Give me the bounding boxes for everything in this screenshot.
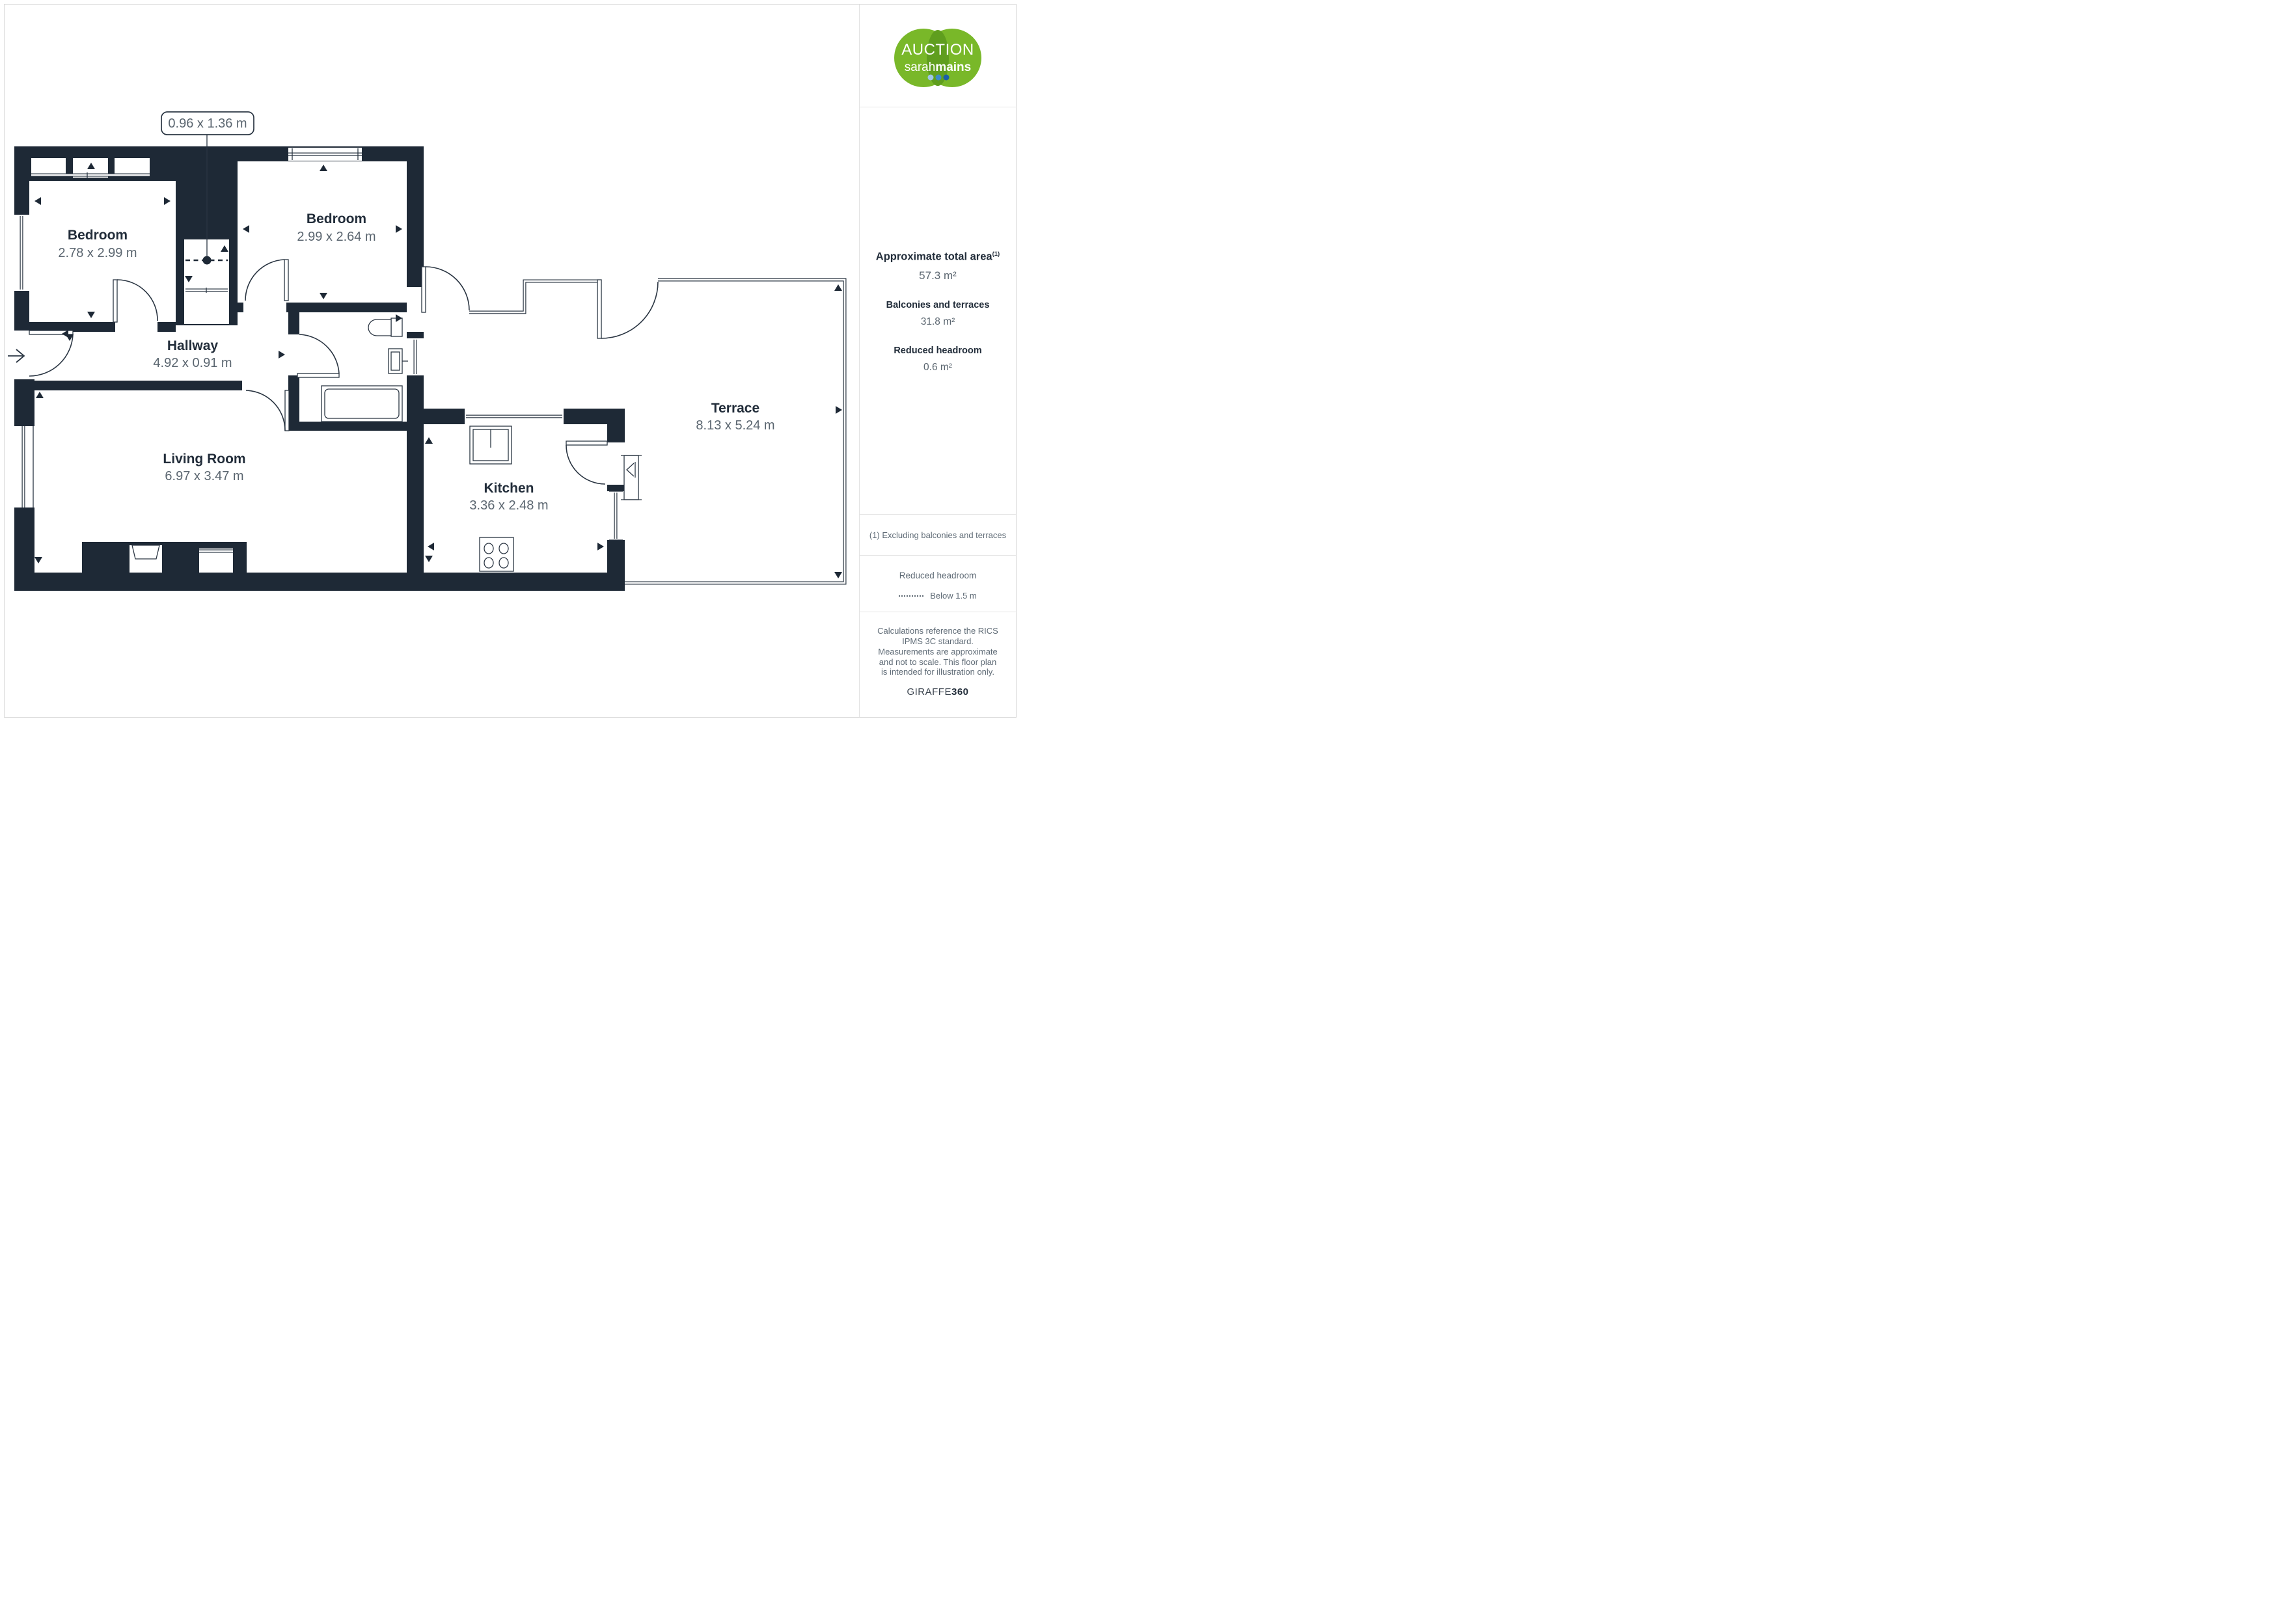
headroom-legend: Reduced headroom Below 1.5 m <box>860 571 1016 601</box>
bathtub-icon <box>321 386 402 422</box>
sidebar-divider-3 <box>860 555 1016 556</box>
sliding-door-terrace <box>621 455 642 500</box>
legend-title: Reduced headroom <box>860 571 1016 580</box>
terrace-railing <box>469 280 845 583</box>
floorplan-page: 0.96 x 1.36 m Bedroom 2.78 x 2.99 m Bedr… <box>0 0 1020 722</box>
fireplace-icon <box>132 545 159 559</box>
svg-text:Terrace: Terrace <box>711 401 759 416</box>
logo-word-mains: mains <box>935 61 971 74</box>
bedroom2-door <box>245 260 288 301</box>
info-sidebar: AUCTION sarahmains Approximate total are… <box>859 5 1016 717</box>
dimension-arrows <box>34 163 842 578</box>
svg-text:2.78 x 2.99 m: 2.78 x 2.99 m <box>58 246 137 260</box>
legend-value: Below 1.5 m <box>930 591 977 601</box>
brand-360: 360 <box>951 686 969 697</box>
balconies-value: 31.8 m² <box>860 316 1016 328</box>
dimension-callout: 0.96 x 1.36 m <box>161 112 254 135</box>
room-label-hallway: Hallway 4.92 x 0.91 m <box>153 338 232 370</box>
total-area-footnote-ref: (1) <box>992 250 1000 258</box>
kitchen-counter-icon <box>470 426 512 464</box>
doors <box>29 260 658 500</box>
svg-text:Living Room: Living Room <box>163 452 245 467</box>
logo-dot-dark <box>944 75 950 81</box>
headroom-value: 0.6 m² <box>860 362 1016 373</box>
logo-word-auction: AUCTION <box>901 41 974 59</box>
svg-text:2.99 x 2.64 m: 2.99 x 2.64 m <box>297 230 376 244</box>
svg-text:Bedroom: Bedroom <box>68 228 128 243</box>
auction-sarah-mains-logo: AUCTION sarahmains <box>892 24 983 92</box>
brand-giraffe: GIRAFFE <box>907 686 951 697</box>
balconies-label: Balconies and terraces <box>860 300 1016 310</box>
room-label-terrace: Terrace 8.13 x 5.24 m <box>696 401 774 433</box>
dimension-callout-text: 0.96 x 1.36 m <box>168 116 247 131</box>
logo-dot-mid <box>936 75 942 81</box>
sink-icon <box>389 349 408 373</box>
floorplan-canvas: 0.96 x 1.36 m Bedroom 2.78 x 2.99 m Bedr… <box>5 5 859 717</box>
legend-row: Below 1.5 m <box>860 591 1016 601</box>
disclaimer-text: Calculations reference the RICS IPMS 3C … <box>876 626 1000 677</box>
room-label-bedroom2: Bedroom 2.99 x 2.64 m <box>297 211 376 244</box>
total-area-label: Approximate total area(1) <box>860 250 1016 264</box>
bedroom1-door <box>113 280 157 322</box>
total-area-value: 57.3 m² <box>860 269 1016 282</box>
svg-text:Bedroom: Bedroom <box>307 211 366 226</box>
giraffe360-brand: GIRAFFE360 <box>860 686 1016 697</box>
bathroom-door <box>297 334 339 377</box>
sidebar-divider-4 <box>860 612 1016 612</box>
entrance-door <box>29 331 73 376</box>
headroom-label: Reduced headroom <box>860 345 1016 356</box>
area-summary: Approximate total area(1) 57.3 m² Balcon… <box>860 250 1016 373</box>
livingroom-door <box>246 390 289 431</box>
dashed-line-icon <box>899 595 923 597</box>
stove-icon <box>480 537 513 571</box>
room-label-kitchen: Kitchen 3.36 x 2.48 m <box>469 481 548 513</box>
footnote-excluding: (1) Excluding balconies and terraces <box>866 530 1009 540</box>
sidebar-divider-1 <box>860 107 1016 107</box>
svg-text:3.36 x 2.48 m: 3.36 x 2.48 m <box>469 498 548 513</box>
agency-logo: AUCTION sarahmains <box>860 24 1016 96</box>
logo-dot-light <box>928 75 934 81</box>
svg-text:Kitchen: Kitchen <box>484 481 534 496</box>
sidebar-divider-2 <box>860 514 1016 515</box>
room-label-livingroom: Living Room 6.97 x 3.47 m <box>163 452 245 483</box>
svg-text:sarahmains: sarahmains <box>905 61 971 74</box>
hallway-terrace-door <box>422 267 469 312</box>
terrace-door-2 <box>597 280 658 338</box>
room-label-bedroom1: Bedroom 2.78 x 2.99 m <box>58 228 137 260</box>
total-area-label-text: Approximate total area <box>876 251 992 263</box>
floorplan-drawing: 0.96 x 1.36 m Bedroom 2.78 x 2.99 m Bedr… <box>5 5 859 717</box>
svg-text:6.97 x 3.47 m: 6.97 x 3.47 m <box>165 469 243 483</box>
kitchen-terrace-door <box>566 441 607 484</box>
logo-word-sarah: sarah <box>905 61 936 74</box>
svg-text:8.13 x 5.24 m: 8.13 x 5.24 m <box>696 418 774 433</box>
svg-text:4.92 x 0.91 m: 4.92 x 0.91 m <box>153 356 232 370</box>
svg-text:Hallway: Hallway <box>167 338 219 353</box>
